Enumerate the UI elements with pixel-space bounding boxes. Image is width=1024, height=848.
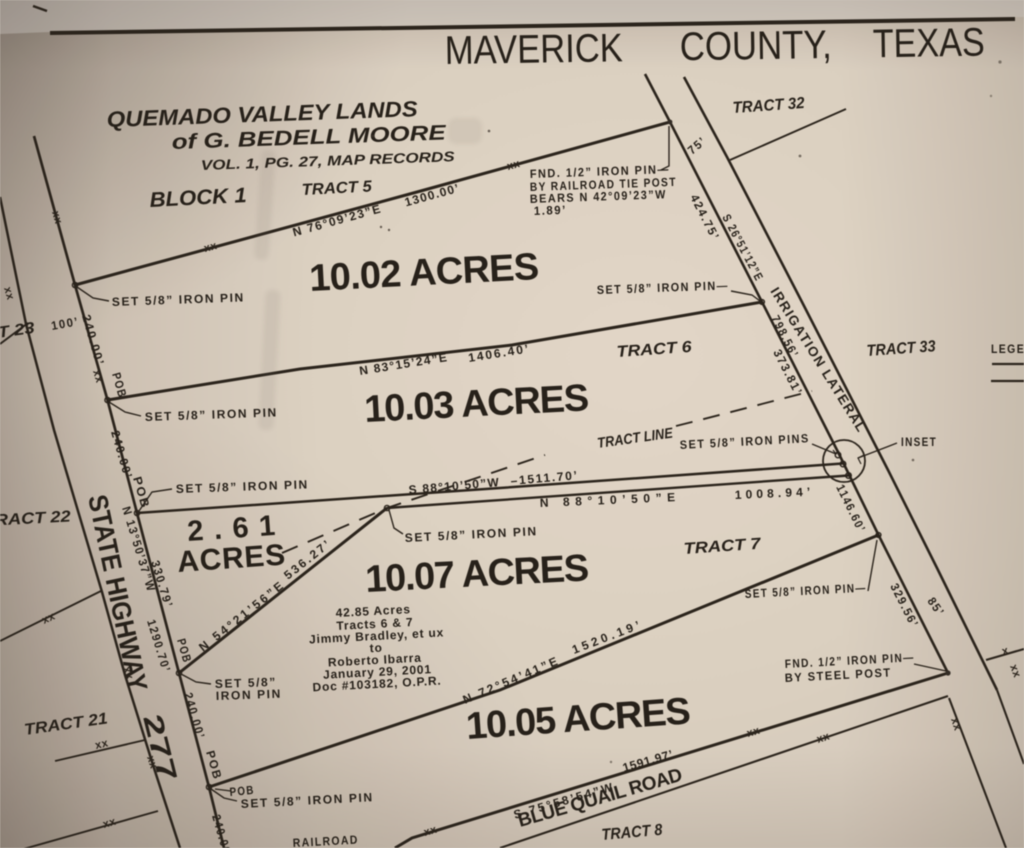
svg-text:POB: POB [229,783,255,799]
svg-text:IRON PIN: IRON PIN [216,687,282,703]
svg-text:MAVERICK: MAVERICK [444,26,623,73]
svg-text:RAILROAD: RAILROAD [292,833,359,848]
svg-text:COUNTY,: COUNTY, [679,23,832,69]
svg-text:INSET: INSET [901,435,937,449]
svg-text:TEXAS: TEXAS [872,21,985,67]
svg-text:1.89’: 1.89’ [534,203,567,218]
svg-text:LEGEND: LEGEND [991,342,1024,356]
